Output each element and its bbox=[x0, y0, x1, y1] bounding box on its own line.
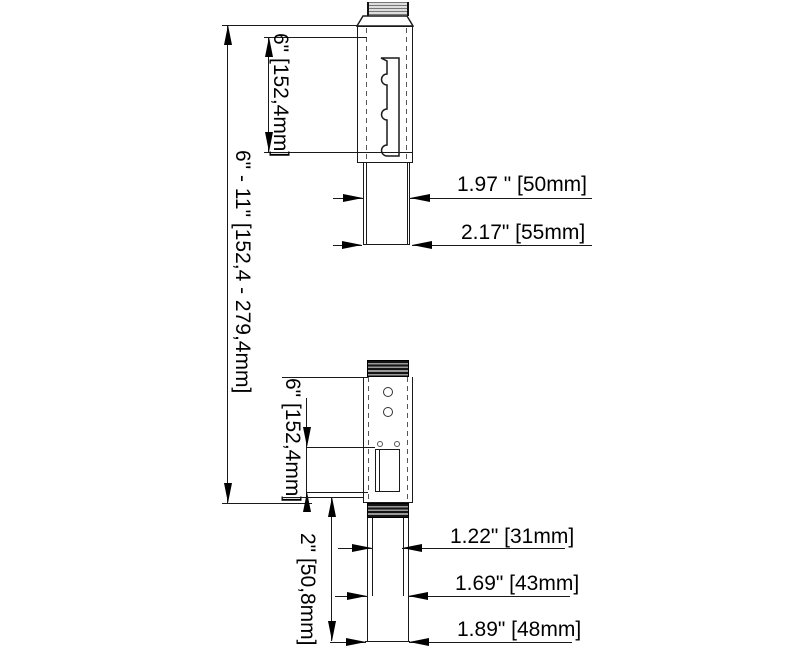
dim-label-lower-length: 6" [152,4mm] bbox=[281, 378, 303, 502]
bottom-tube-inner-wall-left bbox=[372, 518, 373, 596]
dimension-line bbox=[412, 245, 592, 246]
dim-label-width-mid: 1.69" [43mm] bbox=[455, 573, 579, 595]
arrowhead-down bbox=[328, 621, 336, 641]
dim-label-outer-width: 2.17" [55mm] bbox=[461, 222, 585, 244]
extension-line bbox=[307, 447, 375, 448]
dim-label-width-bottom: 1.89" [48mm] bbox=[457, 619, 581, 641]
arrowhead-down bbox=[303, 427, 311, 447]
mounting-hole bbox=[383, 387, 393, 397]
arrowhead-right bbox=[346, 638, 366, 646]
extension-line bbox=[222, 503, 312, 504]
dim-label-width-top: 1.22" [31mm] bbox=[450, 526, 574, 548]
dimension-line bbox=[409, 642, 572, 643]
arrowhead-left bbox=[410, 194, 430, 202]
upper-inner-tube-wall-left bbox=[366, 163, 367, 245]
dimension-line-bottom-length bbox=[331, 497, 332, 641]
arrowhead-right bbox=[347, 592, 367, 600]
arrowhead-right bbox=[343, 194, 363, 202]
dim-label-bottom-length: 2" [50,8mm] bbox=[296, 533, 318, 646]
dimension-line bbox=[410, 198, 592, 199]
small-hole bbox=[394, 441, 400, 447]
upper-inner-tube bbox=[363, 163, 410, 245]
arrowhead-left bbox=[402, 544, 422, 552]
arrowhead-up bbox=[303, 492, 311, 512]
extension-line bbox=[222, 25, 357, 26]
dim-label-inner-width: 1.97 " [50mm] bbox=[457, 174, 587, 196]
bottom-tube-wall-right bbox=[408, 518, 409, 641]
lower-threaded-band-top bbox=[367, 360, 409, 377]
bottom-tube-end-edge bbox=[365, 641, 410, 642]
upper-keyhole-slot bbox=[374, 57, 402, 157]
bottom-tube-wall-left bbox=[367, 518, 368, 641]
extension-line bbox=[306, 492, 368, 493]
small-hole bbox=[377, 441, 383, 447]
arrowhead-up bbox=[328, 497, 336, 517]
arrowhead-left bbox=[412, 241, 432, 249]
dim-label-upper-length: 6" [152,4mm] bbox=[269, 33, 291, 157]
arrowhead-right bbox=[342, 241, 362, 249]
lower-threaded-band-bottom bbox=[367, 503, 409, 518]
bottom-tube-inner-wall-right bbox=[403, 518, 404, 596]
dimension-line bbox=[402, 548, 565, 549]
mounting-hole bbox=[383, 407, 393, 417]
cutout-inner-edge bbox=[379, 449, 380, 492]
arrowhead-right bbox=[352, 544, 372, 552]
arrowhead-left bbox=[408, 592, 428, 600]
dim-label-overall-range: 6" - 11" [152,4 - 279,4mm] bbox=[231, 150, 253, 393]
technical-drawing: 6" - 11" [152,4 - 279,4mm] 6" [152,4mm] … bbox=[0, 0, 800, 650]
arrowhead-up bbox=[224, 25, 232, 45]
upper-inner-tube-wall-right bbox=[407, 163, 408, 245]
extension-line bbox=[282, 497, 363, 498]
upper-hidden-line-left bbox=[366, 28, 367, 161]
upper-threaded-stud bbox=[367, 2, 409, 16]
dimension-line-overall bbox=[227, 25, 228, 503]
arrowhead-down bbox=[224, 483, 232, 503]
arrowhead-left bbox=[409, 638, 429, 646]
lower-hidden-line-left bbox=[368, 377, 369, 503]
dimension-line bbox=[408, 596, 570, 597]
lower-hidden-line-right bbox=[407, 377, 408, 503]
upper-hidden-line-right bbox=[406, 28, 407, 161]
